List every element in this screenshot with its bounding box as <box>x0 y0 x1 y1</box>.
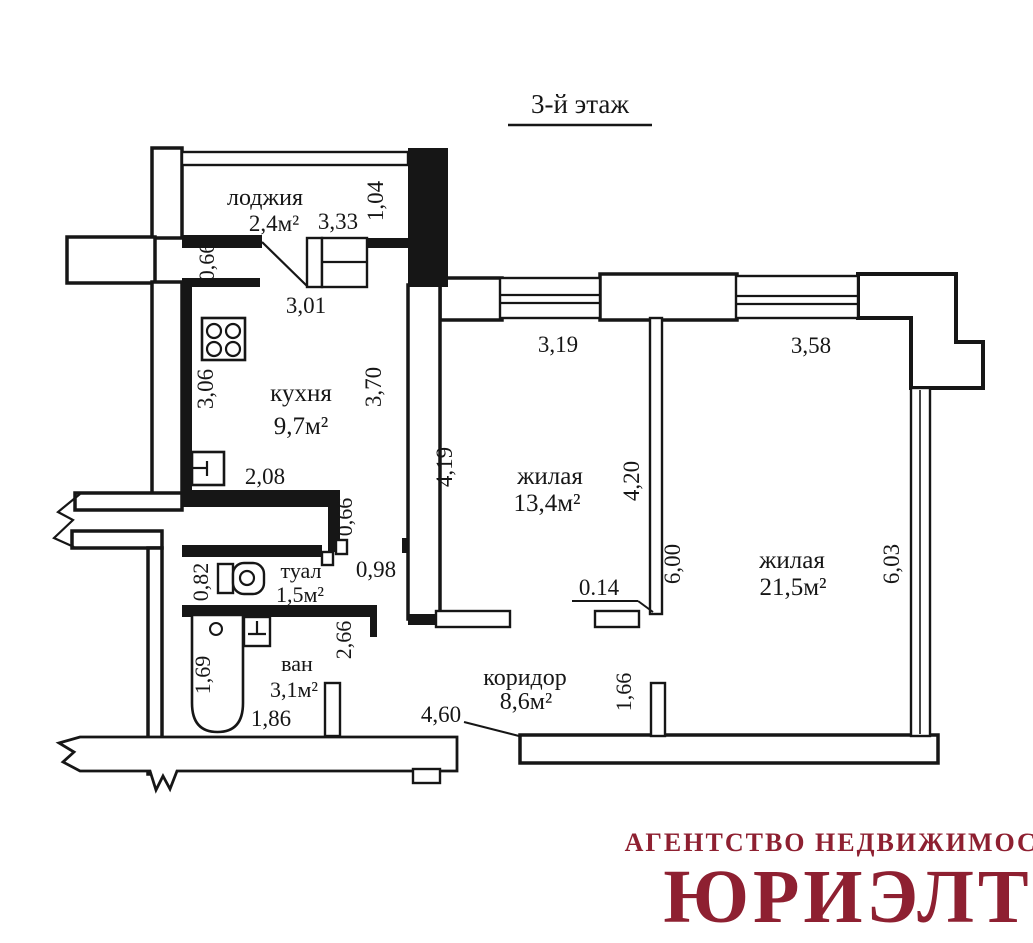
dim-corridor-len: 4,60 <box>421 702 461 727</box>
wall-bath-jamb <box>370 617 377 637</box>
leader-lines <box>464 125 653 736</box>
dim-loggia-depth: 1,04 <box>363 180 388 221</box>
room-living2-area: 21,5м² <box>759 574 826 601</box>
dim-hall-door: 0,98 <box>356 557 396 582</box>
dim-kitchen-right: 3,70 <box>361 367 386 407</box>
agency-logo-line2: ЮРИЭЛТ <box>663 855 1032 939</box>
wall-hallway <box>182 490 340 507</box>
dim-bath-width: 1,86 <box>251 706 291 731</box>
dim-bath-right: 2,66 <box>331 621 356 660</box>
room-bath-name: ван <box>281 651 313 676</box>
room-living1-area: 13,4м² <box>513 490 580 517</box>
washbasin-icon <box>244 617 270 646</box>
dim-room2-right: 6,03 <box>879 544 904 584</box>
room-living2-name: жилая <box>758 547 825 574</box>
door-jamb-tick <box>402 538 408 553</box>
room-corridor-area: 8,6м² <box>500 689 552 715</box>
page-title: 3-й этаж <box>531 89 629 119</box>
dim-corridor-door: 1,66 <box>611 673 636 712</box>
stub-partition-bottom <box>595 611 639 627</box>
room-loggia-area: 2,4м² <box>249 211 299 236</box>
wall-wc-top <box>182 545 322 557</box>
wall-loggia-right <box>408 148 448 287</box>
toilet-icon <box>218 563 264 594</box>
balcony-door-frame <box>307 238 322 287</box>
wall-bottom-notch <box>413 769 440 783</box>
labels: 3-й этаж лоджия 2,4м² 3,33 1,04 0,66 3,0… <box>188 89 904 731</box>
dim-room1-left: 4,19 <box>432 447 457 487</box>
wall-top-connect <box>367 238 408 248</box>
wall-entry-bottom <box>72 531 162 548</box>
dim-room1-right: 4,20 <box>619 461 644 501</box>
wall-bath-right-lower <box>325 683 340 736</box>
wall-bottom-left <box>59 737 457 790</box>
dim-kitchen-left: 3,06 <box>193 369 218 409</box>
agency-logo: АГЕНТСТВО НЕДВИЖИМОСТИ ЮРИЭЛТ <box>625 828 1033 939</box>
wall-left-protrusion <box>67 237 155 283</box>
dim-bath-left: 1,69 <box>190 656 215 695</box>
stub-corridor <box>651 683 665 736</box>
dim-window1: 3,19 <box>538 332 578 357</box>
dim-kitchen-top: 3,01 <box>286 293 326 318</box>
wall-top-b <box>600 274 737 320</box>
dim-loggia-width: 3,33 <box>318 209 358 234</box>
door-swing-line <box>262 242 307 286</box>
dim-kitchen-bottom: 2,08 <box>245 464 285 489</box>
wall-bottom-right <box>520 735 938 763</box>
dim-window2: 3,58 <box>791 333 831 358</box>
room-wc-area: 1,5м² <box>276 582 324 607</box>
floor-plan-drawing: 3-й этаж лоджия 2,4м² 3,33 1,04 0,66 3,0… <box>0 0 1033 943</box>
room-corridor-name: коридор <box>483 665 567 691</box>
window-room1 <box>500 278 600 318</box>
wall-top-right-corner <box>858 274 983 388</box>
door-hinge-wc <box>322 552 333 565</box>
room-living1-name: жилая <box>516 463 583 490</box>
floor-plan-page: 3-й этаж лоджия 2,4м² 3,33 1,04 0,66 3,0… <box>0 0 1033 943</box>
room-wc-name: туал <box>281 558 322 583</box>
dim-partition-thk: 0.14 <box>579 575 620 600</box>
wall-left-top <box>152 148 182 238</box>
agency-logo-line1: АГЕНТСТВО НЕДВИЖИМОСТИ <box>625 828 1033 857</box>
wall-kitchen-left <box>182 283 192 497</box>
stub-room1-bottom <box>436 611 510 627</box>
wall-entry-top <box>75 493 182 510</box>
stove-icon <box>202 318 245 360</box>
loggia-railing <box>182 152 408 165</box>
wall-left-mid <box>152 282 182 494</box>
sink-icon <box>192 452 224 485</box>
room-loggia-name: лоджия <box>227 185 303 211</box>
wall-top-a <box>440 278 502 320</box>
dim-hall-wall: 0,66 <box>332 498 357 537</box>
room-kitchen-name: кухня <box>270 380 332 407</box>
room-bath-area: 3,1м² <box>270 677 318 702</box>
leader-corridor-len <box>464 722 519 736</box>
room-kitchen-area: 9,7м² <box>274 413 329 440</box>
dim-loggia-offset: 0,66 <box>194 243 219 282</box>
door-hinge-kitchen <box>336 540 347 554</box>
dim-wc-left: 0,82 <box>188 563 213 602</box>
dim-partition-len: 6,00 <box>660 544 685 584</box>
